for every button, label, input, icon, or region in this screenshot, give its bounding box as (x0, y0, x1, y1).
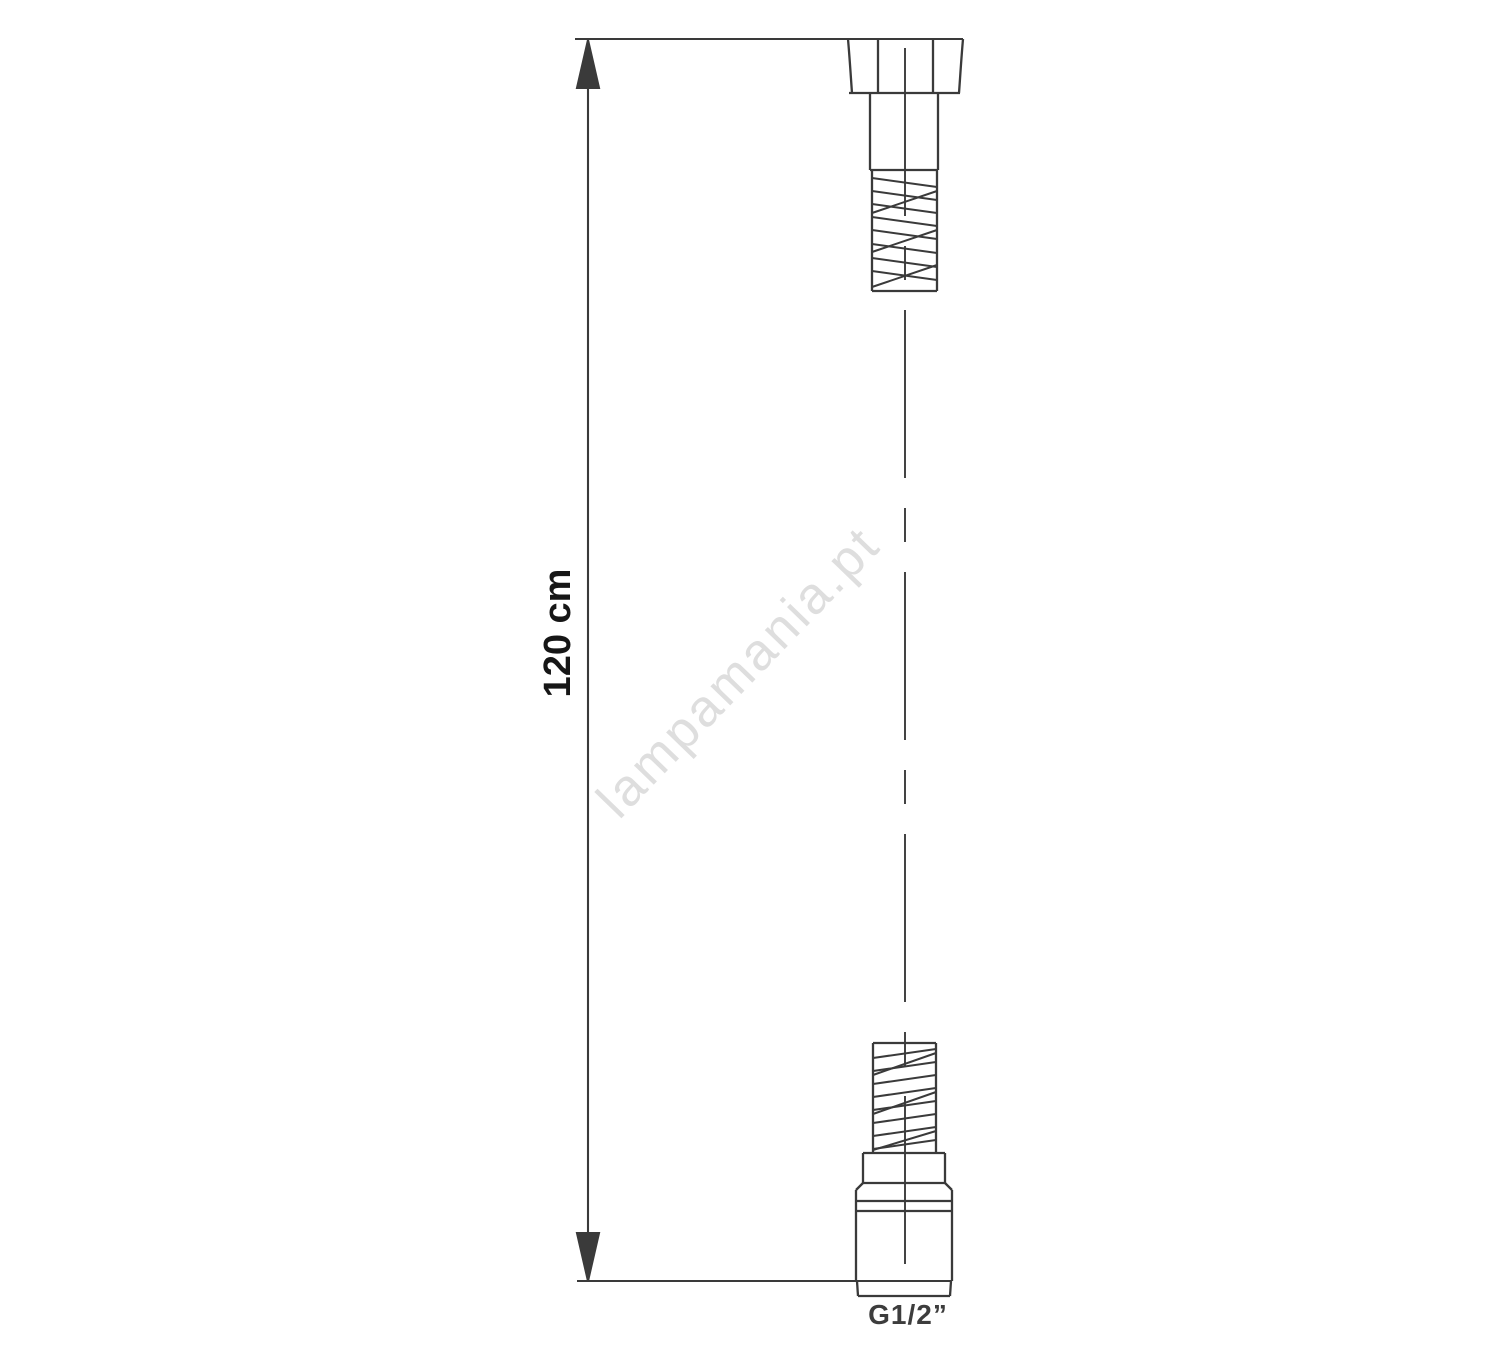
bottom-shoulder-right (945, 1183, 952, 1190)
top-nut-left-side (848, 39, 852, 93)
watermark-text: lampamania.pt (586, 515, 892, 829)
thread-size-label: G1/2” (868, 1299, 948, 1330)
bottom-band-right (950, 1281, 951, 1296)
bottom-connector (856, 1043, 952, 1296)
bottom-shoulder-left (856, 1183, 863, 1190)
arrow-up-icon (577, 40, 599, 88)
arrow-down-icon (577, 1233, 599, 1281)
technical-drawing: lampamania.pt 120 cm (0, 0, 1500, 1365)
top-nut-right-side (959, 39, 963, 93)
dimension-label: 120 cm (537, 569, 579, 698)
bottom-band-left (857, 1281, 858, 1296)
